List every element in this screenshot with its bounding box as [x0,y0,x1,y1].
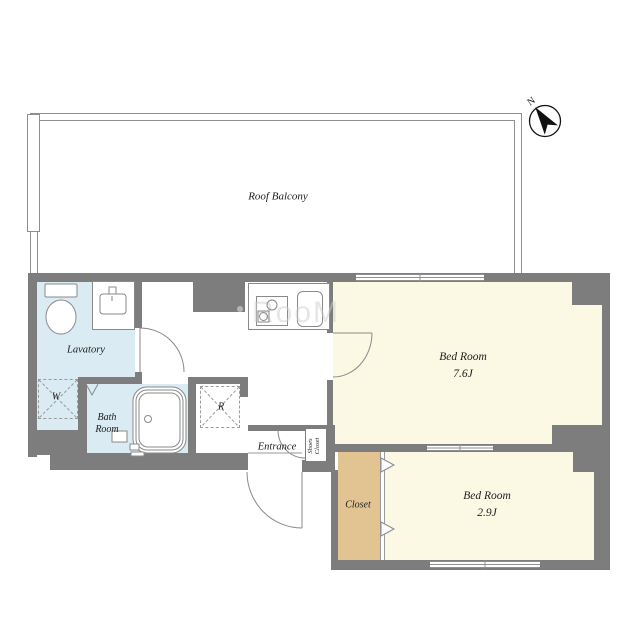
wall-lavatory-right-top [135,282,142,328]
closet-folding-door-strip [380,452,385,560]
lavatory-label: Lavatory [67,344,105,357]
closet-label: Closet [345,499,371,512]
balcony-label: Roof Balcony [248,191,308,204]
watermark: RooM [252,296,340,330]
wall-lavatory-bath-h [78,377,142,384]
washer-label: W [52,391,60,404]
bedroom-small-window [430,561,540,568]
wall-closet-left [331,470,338,570]
north-compass-icon: N [522,93,561,137]
wall-bedroom-small-right [594,452,610,570]
shoes-closet-box: Shoes Closet [305,428,327,462]
entrance-label: Entrance [258,441,297,454]
wall-bedroom-left-bottom [327,380,333,425]
bedroom-small-label: Bed Room 2.9J [463,488,511,522]
wall-below-washer [28,430,87,455]
wall-bedroom-large-corner-block [552,425,610,444]
wall-kitchen-block [193,281,245,312]
bathroom-label: Bath Room [95,412,118,436]
shoes-closet-label: Shoes Closet [307,428,327,464]
lavatory-door-swing [140,328,184,372]
wall-washer-bath-v [78,377,87,430]
floor-plan: Roof Balcony Shoes Closet R [0,0,640,640]
balcony-window [356,274,484,281]
balcony-side-wall [27,114,40,232]
wall-fridge-stub [240,377,248,397]
compass-n-label: N [525,95,537,108]
fridge-label: R [218,401,224,414]
wall-pillar-top-right [572,282,602,305]
wall-lavatory-right-bottom [135,372,142,384]
bedroom-partition-sliding-door [427,445,493,451]
bedroom-large-label: Bed Room 7.6J [439,349,487,383]
wall-bottom-left [50,453,248,470]
entrance-door-swing [247,472,302,528]
wall-fridge-top [188,377,248,384]
wall-bath-right [188,377,196,470]
vanity-cabinet [92,281,135,330]
